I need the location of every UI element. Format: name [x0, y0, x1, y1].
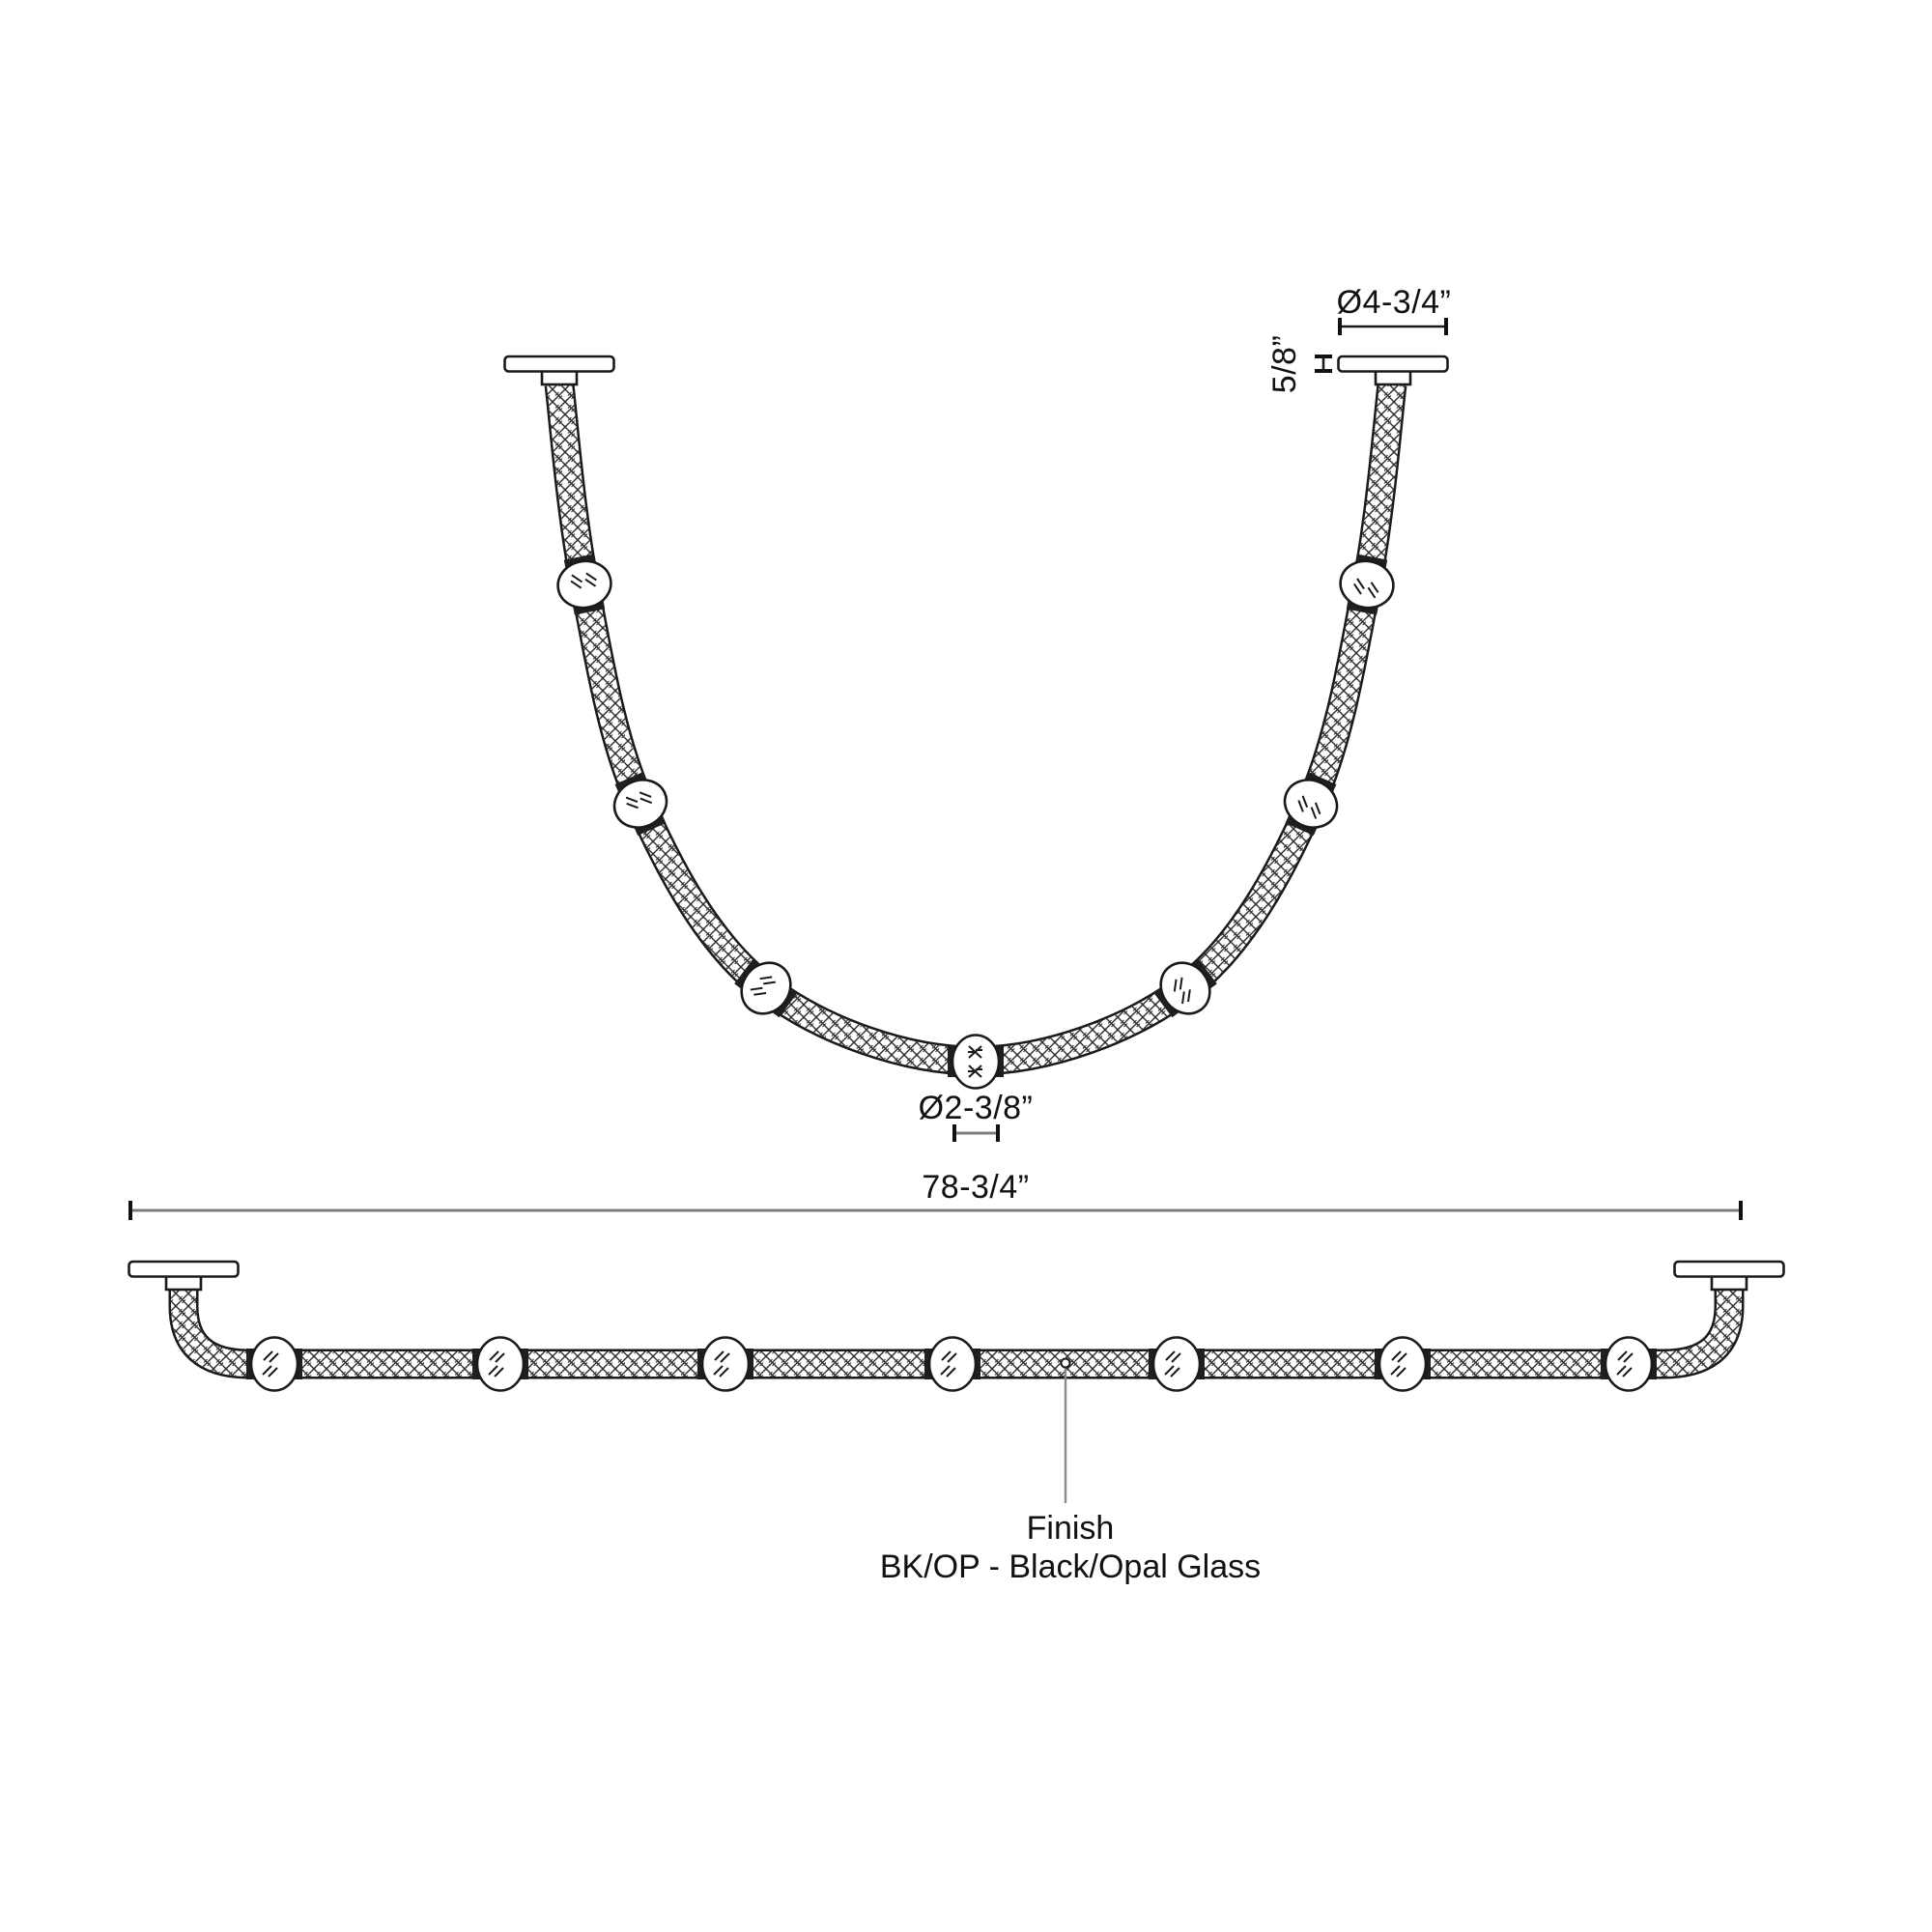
drawing-canvas: Ø4-3/4” 5/8” Ø2-3/8” 78-3/4” [0, 0, 1932, 1932]
dim-overall-length: 78-3/4” [130, 1169, 1741, 1220]
finish-label: Finish [1027, 1510, 1115, 1547]
glass-orb [924, 1338, 980, 1391]
glass-orb [697, 1338, 753, 1391]
dim-canopy-diameter: Ø4-3/4” [1337, 284, 1452, 335]
finish-callout: Finish BK/OP - Black/Opal Glass [880, 1359, 1261, 1586]
dim-canopy-height-label: 5/8” [1266, 335, 1303, 394]
ceiling-canopy-right [1675, 1262, 1784, 1290]
dim-orb-diameter-label: Ø2-3/8” [919, 1090, 1034, 1126]
dim-canopy-diameter-label: Ø4-3/4” [1337, 284, 1452, 321]
glass-orb-center [948, 1036, 1004, 1089]
finish-value: BK/OP - Black/Opal Glass [880, 1548, 1261, 1585]
ceiling-canopy-left [505, 356, 614, 384]
glass-orb [1601, 1338, 1657, 1391]
dim-overall-length-label: 78-3/4” [922, 1169, 1029, 1206]
dim-canopy-height: 5/8” [1266, 335, 1332, 394]
ceiling-canopy-right [1339, 356, 1448, 384]
glass-orb [1149, 1338, 1205, 1391]
glass-orb [1335, 552, 1398, 616]
draped-cord [559, 384, 1392, 1061]
glass-orb [472, 1338, 528, 1391]
ceiling-canopy-left [129, 1262, 239, 1290]
glass-orb [553, 552, 615, 616]
glass-orb [1375, 1338, 1431, 1391]
straight-view: 78-3/4” Finish BK/OP - Black/Opal Glass [129, 1169, 1784, 1585]
dim-orb-diameter: Ø2-3/8” [919, 1090, 1034, 1142]
glass-orb [246, 1338, 302, 1391]
fixture-technical-drawing: Ø4-3/4” 5/8” Ø2-3/8” 78-3/4” [0, 0, 1932, 1932]
suspended-view: Ø4-3/4” 5/8” Ø2-3/8” [505, 284, 1452, 1142]
